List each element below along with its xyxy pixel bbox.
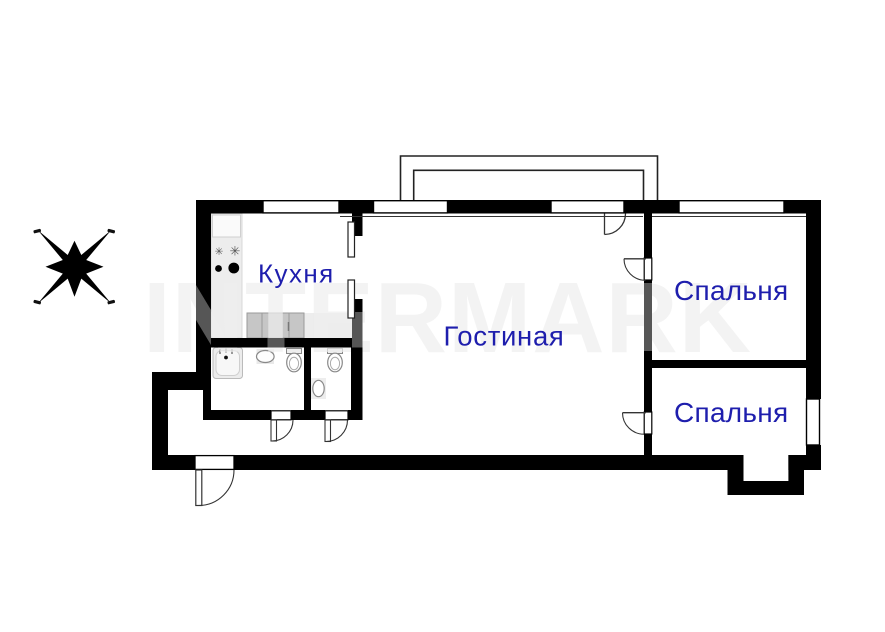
svg-text:✳: ✳ xyxy=(230,244,241,259)
svg-text:✳: ✳ xyxy=(215,246,224,258)
svg-text:Кухня: Кухня xyxy=(258,259,335,289)
svg-text:Спальня: Спальня xyxy=(674,275,788,306)
svg-text:INTERMARK: INTERMARK xyxy=(143,262,752,374)
svg-text:Спальня: Спальня xyxy=(674,397,788,428)
svg-text:Гостиная: Гостиная xyxy=(444,321,565,352)
